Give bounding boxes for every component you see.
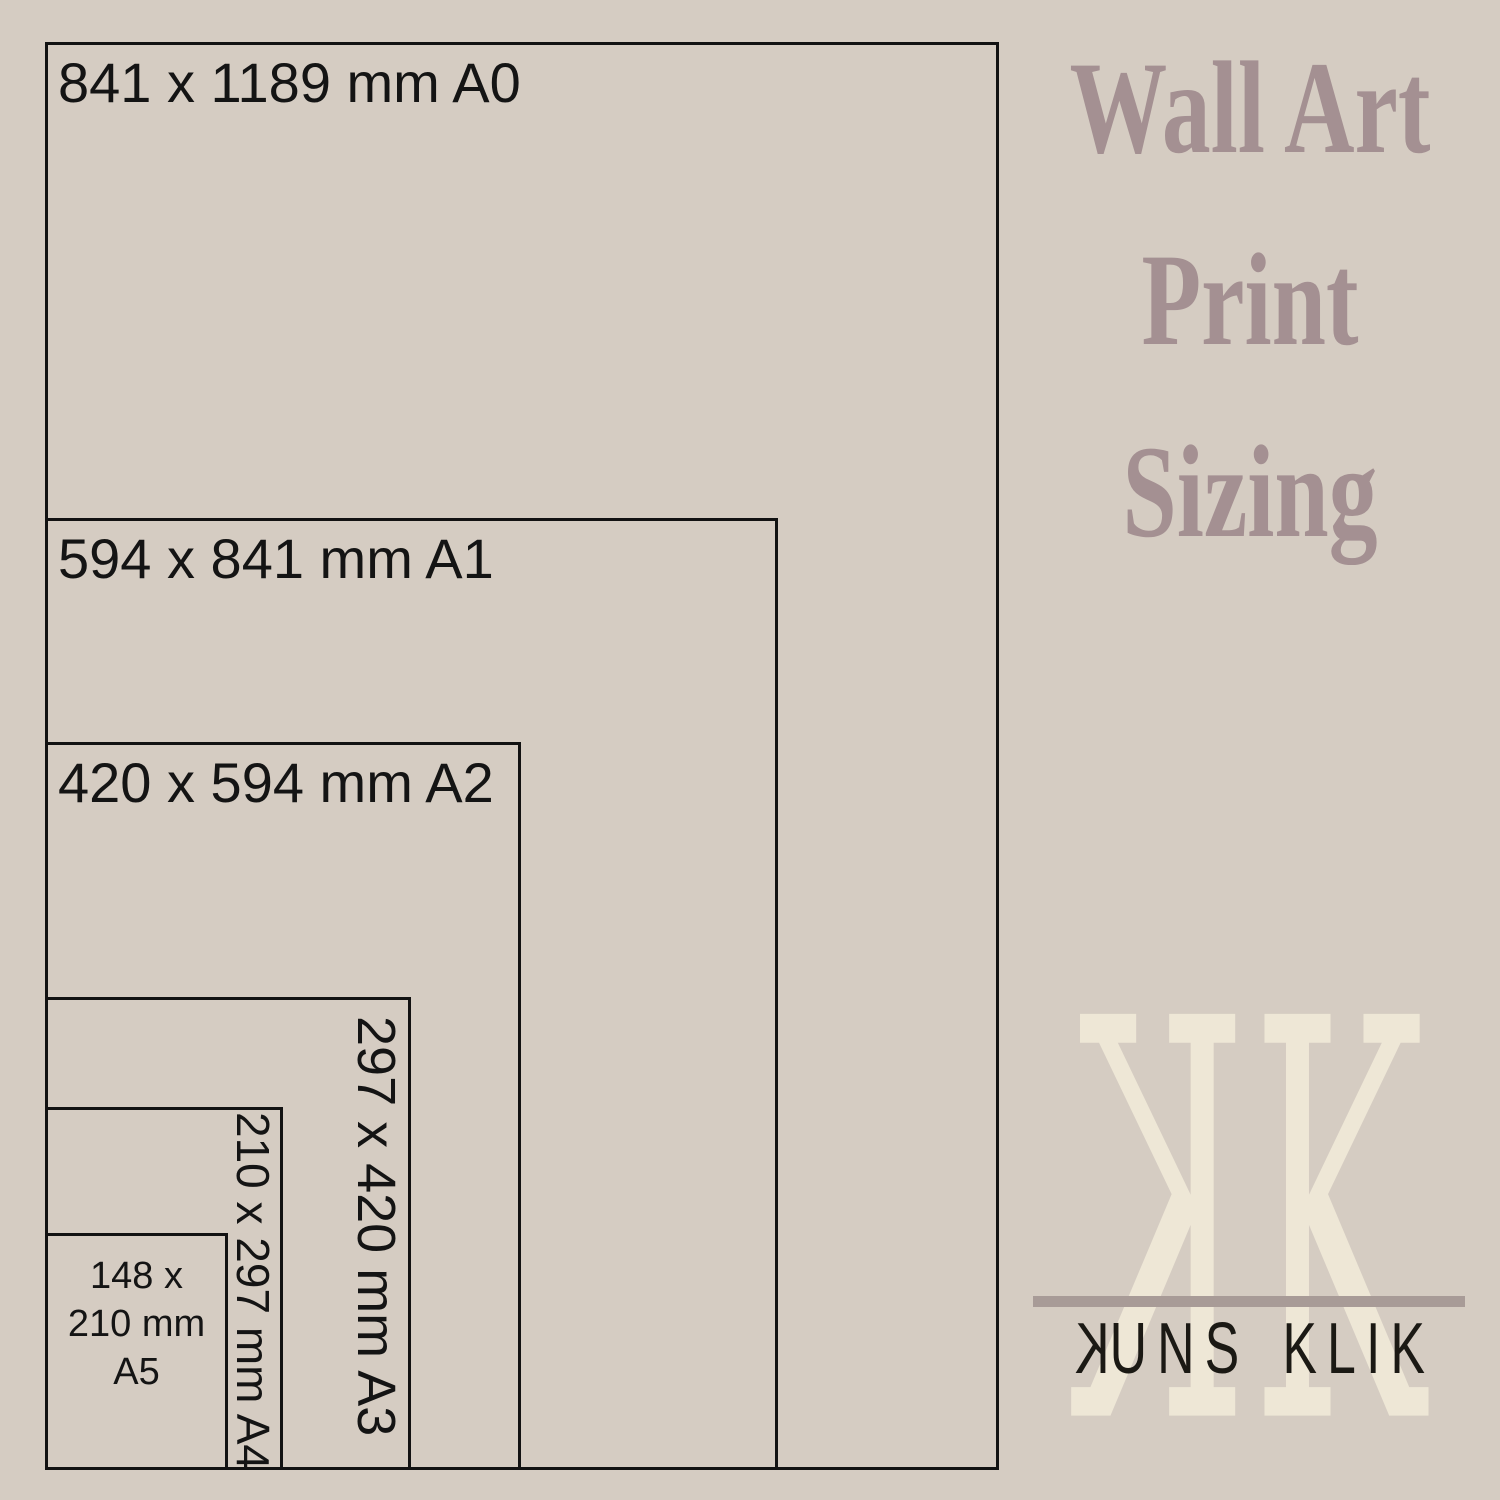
size-label-a3: 297 x 420 mm A3 bbox=[349, 1016, 403, 1436]
logo-wordmark: KUNSKLIK bbox=[1063, 1308, 1437, 1390]
page-title: Wall Art Print Sizing bbox=[1000, 12, 1500, 588]
monogram-mirrored-k: K bbox=[1075, 952, 1248, 1500]
wall-art-print-sizing-poster: 841 x 1189 mm A0 594 x 841 mm A1 420 x 5… bbox=[0, 0, 1500, 1500]
logo-divider bbox=[1033, 1296, 1465, 1307]
wordmark-klik: KLIK bbox=[1282, 1309, 1435, 1389]
title-line-1: Wall Art bbox=[1065, 12, 1435, 204]
size-label-a5-line1: 148 x bbox=[90, 1252, 183, 1300]
title-line-3: Sizing bbox=[1065, 396, 1435, 588]
wordmark-kuns: KUNS bbox=[1065, 1309, 1249, 1389]
monogram-k: K bbox=[1252, 952, 1425, 1500]
size-box-a5: 148 x 210 mm A5 bbox=[45, 1233, 228, 1470]
size-label-a5-line2: 210 mm bbox=[68, 1300, 205, 1348]
size-label-a0: 841 x 1189 mm A0 bbox=[48, 45, 996, 114]
wordmark-mirrored-k: K bbox=[1065, 1308, 1110, 1390]
wordmark-uns: UNS bbox=[1110, 1309, 1250, 1389]
kk-monogram-icon: K K bbox=[1040, 952, 1460, 1242]
size-label-a4: 210 x 297 mm A4 bbox=[230, 1112, 276, 1470]
size-label-a5-line3: A5 bbox=[113, 1348, 159, 1396]
title-line-2: Print bbox=[1065, 204, 1435, 396]
size-label-a2: 420 x 594 mm A2 bbox=[48, 745, 518, 814]
size-label-a1: 594 x 841 mm A1 bbox=[48, 521, 775, 590]
